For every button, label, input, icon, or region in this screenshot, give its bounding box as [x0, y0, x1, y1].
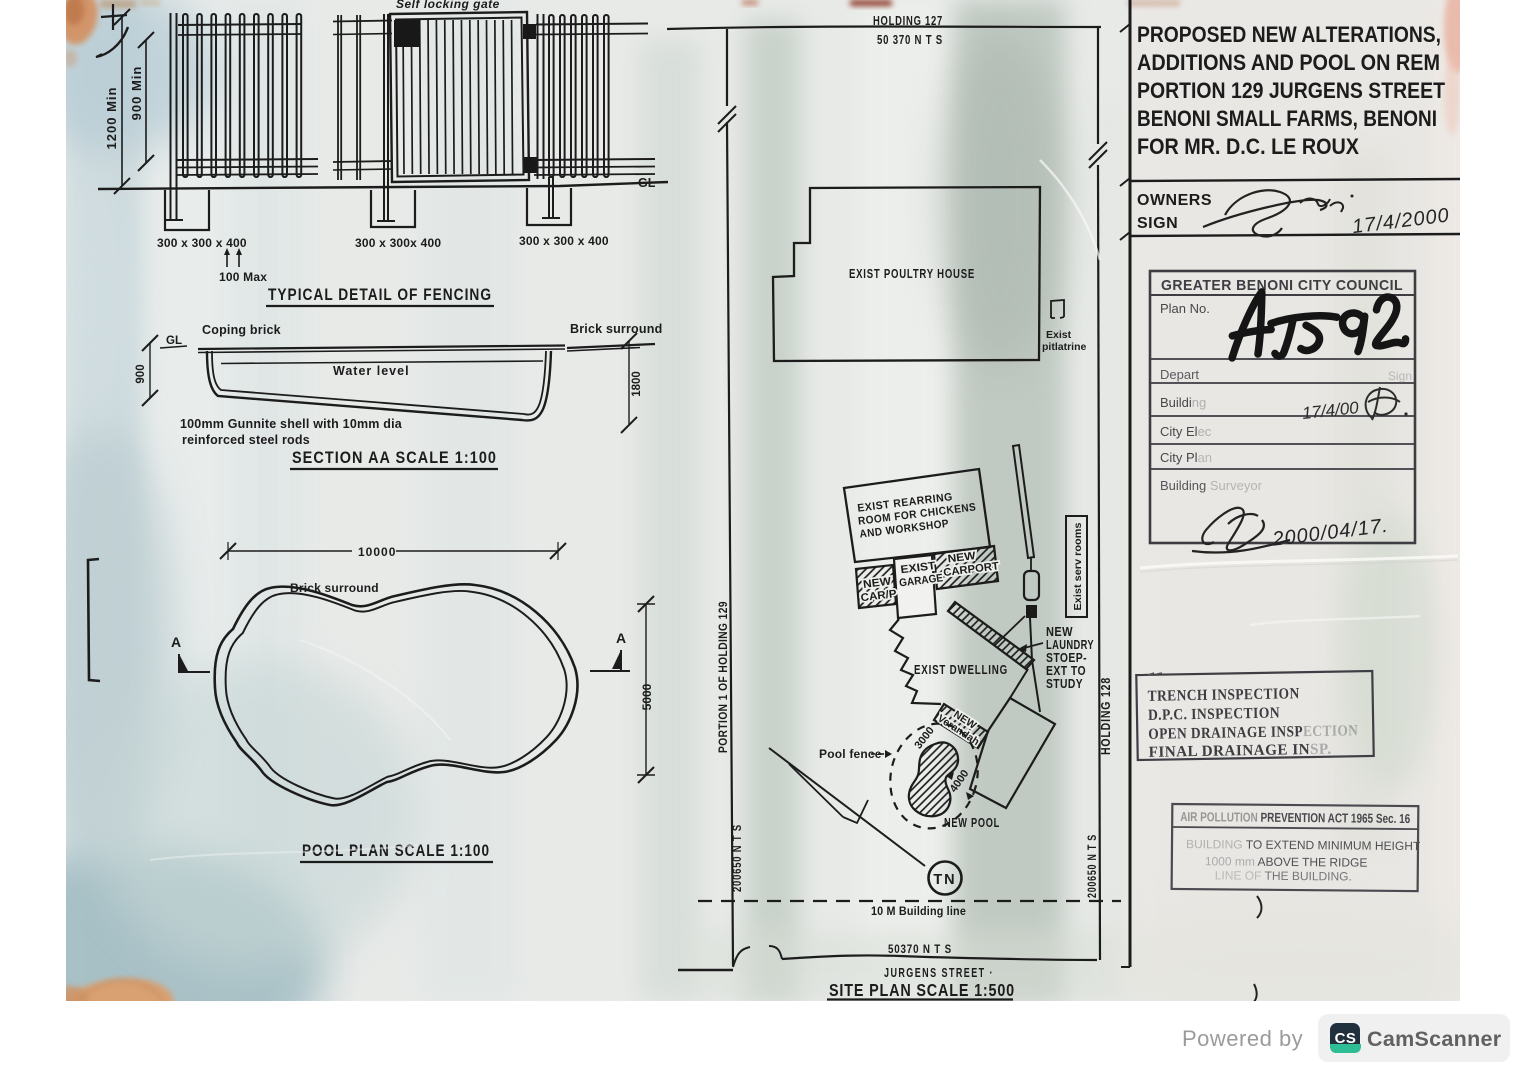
svg-text:LAUNDRY: LAUNDRY [1046, 638, 1094, 652]
svg-text:1800: 1800 [631, 371, 643, 397]
svg-text:Self locking gate: Self locking gate [396, 0, 500, 11]
svg-text:A: A [616, 630, 626, 646]
svg-text:ADDITIONS AND POOL ON REM: ADDITIONS AND POOL ON REM [1137, 50, 1440, 75]
svg-text:Exist serv rooms: Exist serv rooms [1072, 522, 1084, 610]
svg-text:300 x 300x 400: 300 x 300x 400 [355, 236, 441, 250]
svg-text:Brick surround: Brick surround [570, 322, 662, 336]
svg-text:Building: Building [1160, 395, 1206, 410]
svg-text:900 Min: 900 Min [129, 66, 144, 121]
svg-text:EXIST POULTRY HOUSE: EXIST POULTRY HOUSE [849, 267, 975, 281]
svg-text:300 x 300 x 400: 300 x 300 x 400 [157, 236, 247, 250]
svg-text:NEW POOL: NEW POOL [944, 816, 1000, 830]
svg-text:HOLDING 128: HOLDING 128 [1099, 677, 1113, 755]
svg-text:Sign: Sign [1388, 369, 1412, 383]
svg-text:900: 900 [135, 364, 147, 383]
svg-text:5000: 5000 [640, 683, 654, 710]
svg-text:Plan No.: Plan No. [1160, 301, 1210, 316]
svg-text:PORTION 1 OF HOLDING 129: PORTION 1 OF HOLDING 129 [716, 601, 730, 753]
svg-text:Building Surveyor: Building Surveyor [1160, 478, 1263, 493]
svg-text:Powered by: Powered by [1182, 1026, 1303, 1051]
svg-text:TN: TN [933, 872, 956, 888]
svg-text:STOEP-: STOEP- [1046, 651, 1087, 665]
svg-text:GL: GL [638, 176, 656, 190]
svg-text:Exist: Exist [1046, 329, 1072, 341]
svg-text:D.P.C. INSPECTION: D.P.C. INSPECTION [1148, 705, 1280, 724]
svg-text:10 M Building line: 10 M Building line [871, 904, 966, 918]
svg-text:300 x 300 x 400: 300 x 300 x 400 [519, 234, 609, 248]
svg-text:PORTION 129 JURGENS STREET: PORTION 129 JURGENS STREET [1137, 78, 1445, 103]
svg-text:JURGENS STREET ·: JURGENS STREET · [884, 966, 994, 980]
svg-text:reinforced steel rods: reinforced steel rods [182, 433, 310, 447]
svg-text:1200 Min: 1200 Min [104, 87, 119, 150]
svg-text:pitlatrine: pitlatrine [1042, 341, 1086, 353]
svg-text:10000: 10000 [358, 545, 396, 559]
svg-text:SIGN: SIGN [1137, 215, 1178, 232]
svg-text:TRENCH INSPECTION: TRENCH INSPECTION [1148, 685, 1300, 705]
svg-text:BENONI SMALL FARMS, BENONI: BENONI SMALL FARMS, BENONI [1137, 106, 1437, 131]
svg-text:CS: CS [1335, 1030, 1357, 1047]
svg-text:TYPICAL DETAIL OF FENCING: TYPICAL DETAIL OF FENCING [268, 286, 492, 304]
svg-text:NEW: NEW [1046, 625, 1073, 639]
svg-text:50370 N T S: 50370 N T S [888, 942, 952, 956]
svg-text:Coping brick: Coping brick [202, 323, 281, 337]
svg-text:EXIST DWELLING: EXIST DWELLING [914, 663, 1008, 677]
svg-text:50 370 N T S: 50 370 N T S [877, 33, 943, 47]
svg-text:HOLDING 127: HOLDING 127 [873, 14, 943, 28]
svg-text:SECTION AA SCALE 1:100: SECTION AA SCALE 1:100 [292, 449, 497, 467]
svg-text:City Plan: City Plan [1160, 450, 1212, 465]
svg-text:100 Max: 100 Max [219, 270, 267, 284]
svg-text:SITE PLAN SCALE 1:500: SITE PLAN SCALE 1:500 [829, 980, 1015, 1000]
svg-text:OWNERS: OWNERS [1137, 192, 1212, 209]
svg-text:Water level: Water level [333, 364, 410, 378]
svg-text:200650 N T S: 200650 N T S [1087, 834, 1099, 898]
svg-text:CamScanner: CamScanner [1367, 1027, 1502, 1051]
svg-text:200650 N T S: 200650 N T S [732, 824, 744, 892]
svg-text:FINAL DRAINAGE INSP.: FINAL DRAINAGE INSP. [1148, 741, 1331, 761]
svg-text:GREATER BENONI CITY COUNCIL: GREATER BENONI CITY COUNCIL [1161, 277, 1403, 294]
svg-text:STUDY: STUDY [1046, 677, 1083, 691]
svg-text:BUILDING TO EXTEND MINIMUM HEI: BUILDING TO EXTEND MINIMUM HEIGHT [1186, 837, 1421, 853]
svg-text:AIR POLLUTION PREVENTION ACT 1: AIR POLLUTION PREVENTION ACT 1965 Sec. 1… [1180, 809, 1410, 826]
svg-text:FOR MR. D.C. LE ROUX: FOR MR. D.C. LE ROUX [1137, 134, 1359, 159]
svg-text:LINE OF THE BUILDING.: LINE OF THE BUILDING. [1215, 868, 1352, 883]
svg-text:1000 mm ABOVE THE RIDGE: 1000 mm ABOVE THE RIDGE [1205, 854, 1368, 869]
svg-text:Depart: Depart [1160, 367, 1199, 382]
svg-text:100mm Gunnite shell with 10mm: 100mm Gunnite shell with 10mm dia [180, 417, 403, 431]
svg-text:City Elec: City Elec [1160, 424, 1212, 439]
svg-text:A: A [171, 634, 181, 650]
svg-text:PROPOSED NEW ALTERATIONS,: PROPOSED NEW ALTERATIONS, [1137, 22, 1441, 47]
svg-text:GL: GL [166, 335, 182, 347]
svg-text:EXT TO: EXT TO [1046, 664, 1086, 678]
